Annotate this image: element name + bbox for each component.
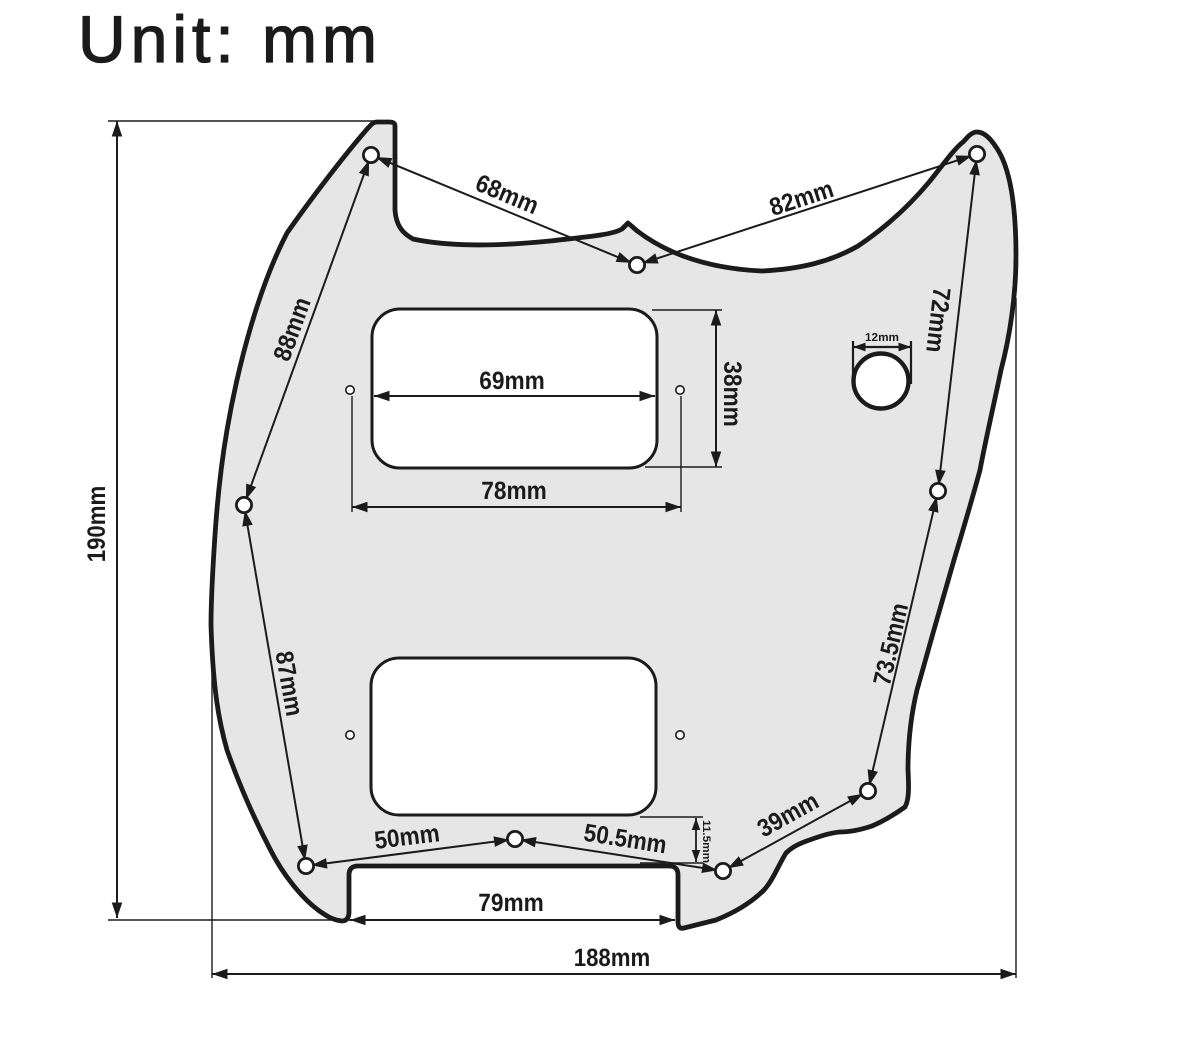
svg-text:69mm: 69mm xyxy=(479,367,545,395)
svg-text:11.5mm: 11.5mm xyxy=(700,820,712,863)
svg-text:190mm: 190mm xyxy=(83,486,111,563)
svg-text:188mm: 188mm xyxy=(574,944,651,972)
svg-text:79mm: 79mm xyxy=(478,889,544,917)
svg-text:12mm: 12mm xyxy=(865,332,899,344)
svg-text:78mm: 78mm xyxy=(481,477,547,505)
svg-text:38mm: 38mm xyxy=(718,361,746,427)
